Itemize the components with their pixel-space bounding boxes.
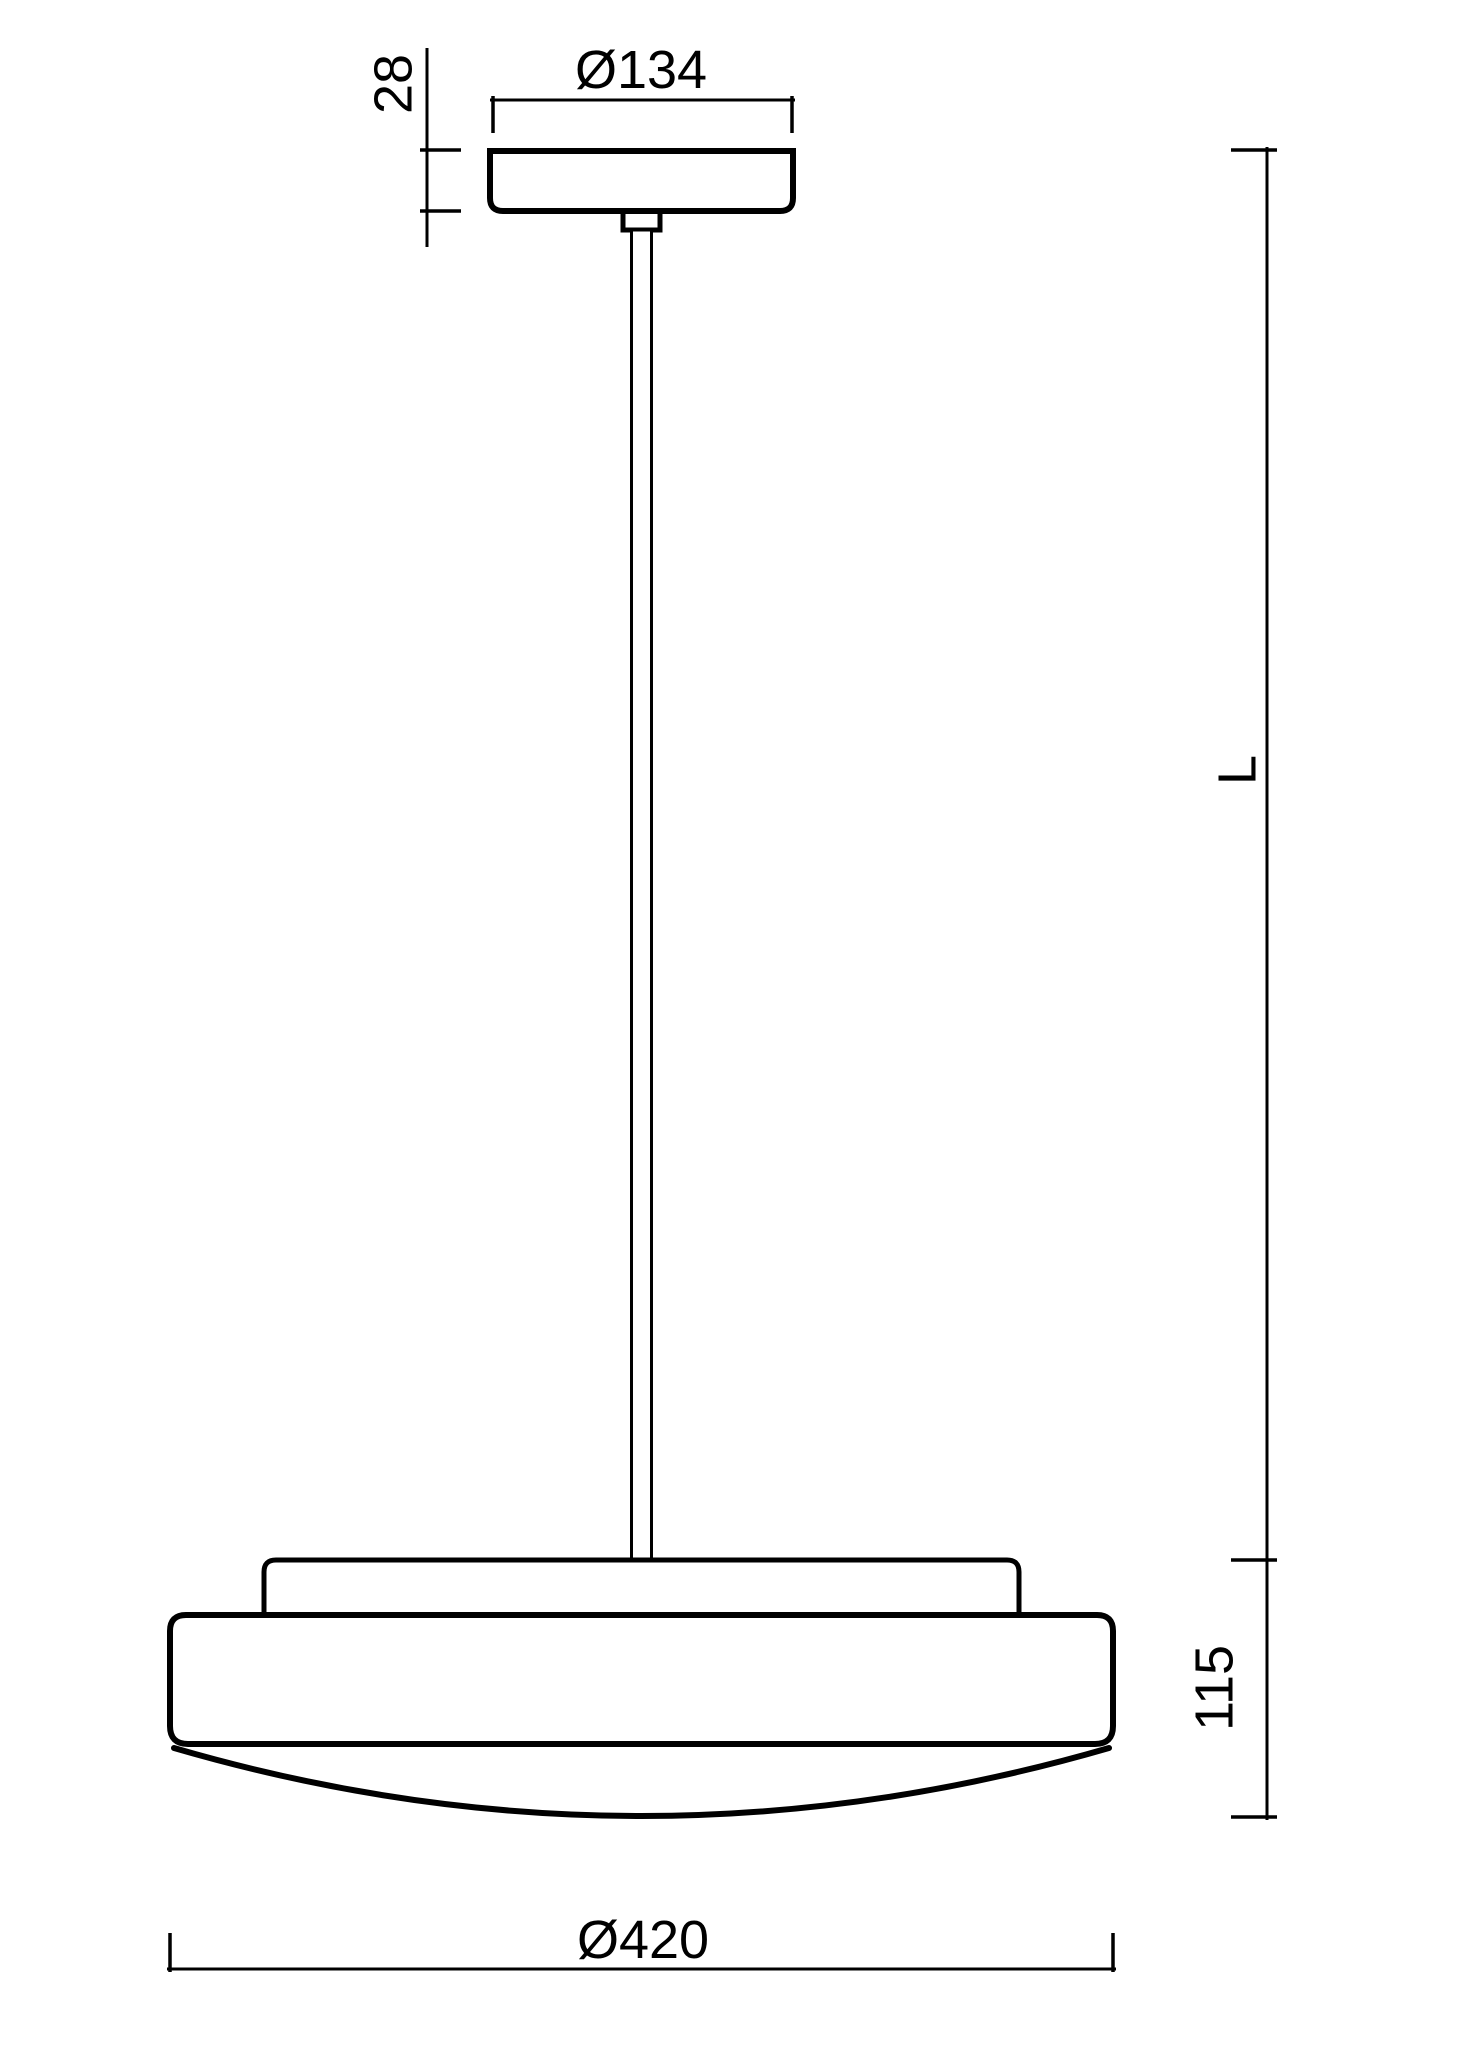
technical-drawing-canvas: 28 Ø134 L 115 Ø420 bbox=[0, 0, 1458, 2063]
shade-mounting-plate bbox=[264, 1560, 1019, 1618]
dimension-shade-diameter: Ø420 bbox=[167, 1910, 1116, 1972]
dimension-canopy-diameter: Ø134 bbox=[490, 40, 795, 133]
dimension-label-canopy-height: 28 bbox=[363, 54, 423, 114]
shade-body bbox=[170, 1615, 1113, 1744]
dimension-label-canopy-diameter: Ø134 bbox=[575, 40, 707, 100]
dimension-label-shade-diameter: Ø420 bbox=[577, 1910, 709, 1970]
dimension-pendant-length: L 115 bbox=[1184, 147, 1277, 1820]
dimension-label-pendant-length: L bbox=[1207, 755, 1267, 785]
dimension-canopy-height: 28 bbox=[363, 48, 461, 247]
drawing-page: 28 Ø134 L 115 Ø420 bbox=[0, 0, 1458, 2063]
shade-glass-bottom bbox=[174, 1748, 1109, 1816]
suspension-stem bbox=[632, 230, 652, 1562]
dimension-label-shade-height: 115 bbox=[1184, 1645, 1244, 1731]
ceiling-canopy bbox=[490, 151, 793, 211]
